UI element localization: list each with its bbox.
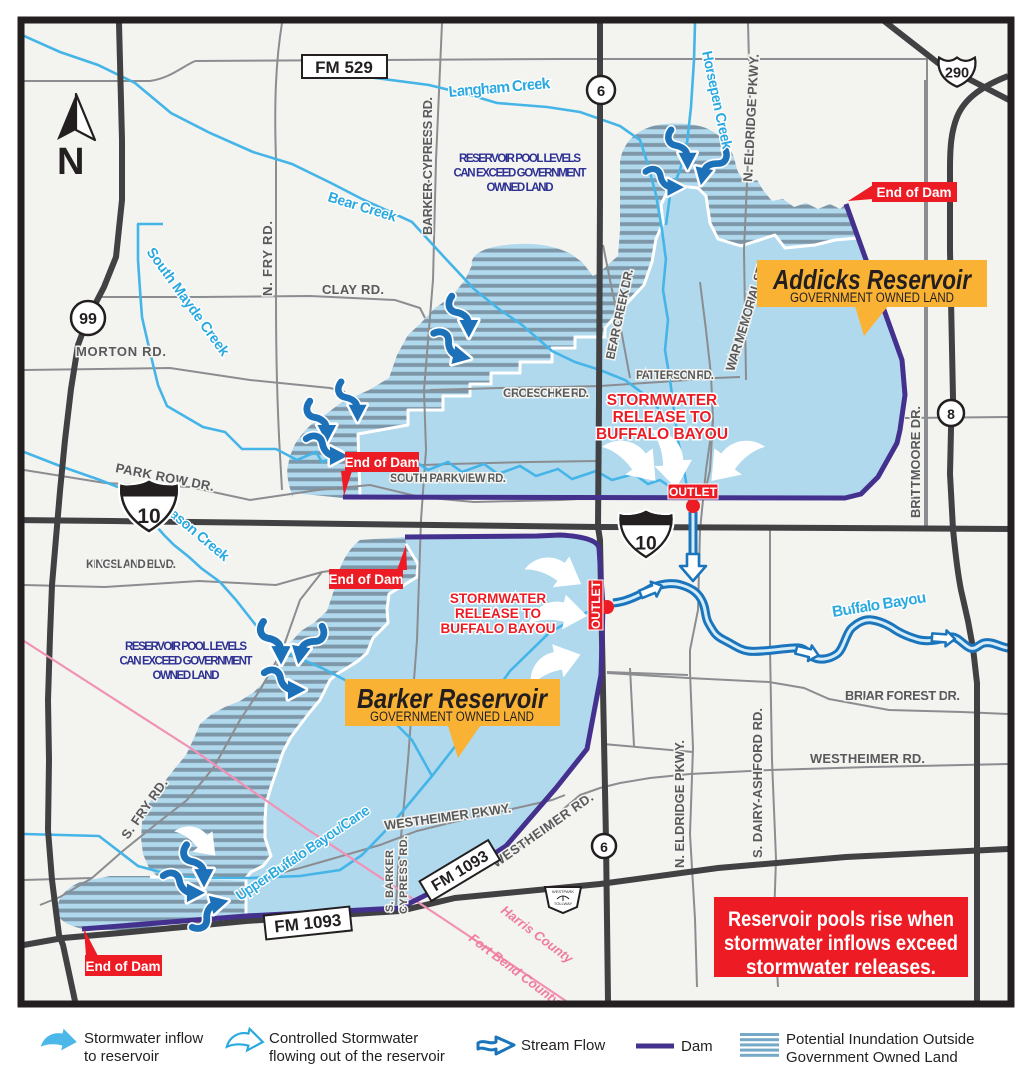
svg-text:10: 10 — [137, 505, 160, 528]
svg-text:End of Dam: End of Dam — [328, 572, 403, 587]
svg-text:GOVERNMENT OWNED LAND: GOVERNMENT OWNED LAND — [790, 290, 954, 305]
svg-text:BRITTMOORE DR.: BRITTMOORE DR. — [908, 406, 923, 518]
svg-text:OWNED LAND: OWNED LAND — [153, 670, 220, 682]
svg-text:99: 99 — [79, 311, 97, 328]
svg-text:CYPRESS RD.: CYPRESS RD. — [398, 836, 410, 914]
svg-text:stormwater inflows exceed: stormwater inflows exceed — [724, 932, 958, 955]
svg-text:STORMWATER: STORMWATER — [607, 392, 718, 409]
svg-text:OUTLET: OUTLET — [589, 580, 603, 629]
svg-text:Controlled Stormwater: Controlled Stormwater — [269, 1030, 418, 1047]
svg-text:CAN EXCEED GOVERNMENT: CAN EXCEED GOVERNMENT — [454, 168, 587, 180]
svg-text:10: 10 — [635, 534, 656, 555]
svg-text:FM 529: FM 529 — [315, 58, 373, 77]
svg-text:PATTERSON RD.: PATTERSON RD. — [636, 370, 714, 382]
svg-text:STORMWATER: STORMWATER — [450, 591, 546, 606]
svg-text:flowing out of the reservoir: flowing out of the reservoir — [269, 1048, 445, 1065]
svg-text:Potential Inundation Outside: Potential Inundation Outside — [786, 1031, 974, 1048]
svg-text:Government Owned Land: Government Owned Land — [786, 1049, 958, 1066]
svg-text:GOVERNMENT OWNED LAND: GOVERNMENT OWNED LAND — [370, 709, 534, 724]
svg-text:RELEASE TO: RELEASE TO — [455, 606, 541, 621]
svg-text:OWNED LAND: OWNED LAND — [487, 182, 554, 194]
svg-text:stormwater releases.: stormwater releases. — [746, 956, 936, 979]
svg-text:S. DAIRY-ASHFORD RD.: S. DAIRY-ASHFORD RD. — [750, 708, 765, 858]
svg-text:RESERVOIR POOL LEVELS: RESERVOIR POOL LEVELS — [459, 153, 581, 165]
svg-text:WESTHEIMER RD.: WESTHEIMER RD. — [810, 751, 925, 766]
svg-text:Dam: Dam — [681, 1038, 713, 1055]
svg-text:MORTON RD.: MORTON RD. — [76, 344, 166, 359]
svg-text:8: 8 — [947, 406, 955, 422]
svg-text:WESTPARK: WESTPARK — [552, 889, 574, 894]
svg-text:6: 6 — [600, 839, 608, 855]
svg-text:BUFFALO BAYOU: BUFFALO BAYOU — [596, 426, 728, 443]
svg-text:KINGSLAND BLVD.: KINGSLAND BLVD. — [86, 559, 176, 571]
svg-text:RESERVOIR POOL LEVELS: RESERVOIR POOL LEVELS — [125, 641, 247, 653]
svg-text:to reservoir: to reservoir — [84, 1048, 159, 1065]
svg-text:Reservoir pools rise when: Reservoir pools rise when — [728, 908, 954, 931]
svg-text:N: N — [57, 141, 84, 183]
svg-text:BUFFALO BAYOU: BUFFALO BAYOU — [440, 621, 555, 636]
svg-text:CAN EXCEED GOVERNMENT: CAN EXCEED GOVERNMENT — [120, 656, 253, 668]
svg-text:SOUTH PARKVIEW RD.: SOUTH PARKVIEW RD. — [390, 473, 506, 485]
svg-text:N. ELDRIDGE PKWY.: N. ELDRIDGE PKWY. — [672, 740, 687, 868]
svg-text:S. BARKER: S. BARKER — [384, 850, 396, 912]
svg-text:End of Dam: End of Dam — [85, 959, 160, 974]
svg-text:BARKER-CYPRESS RD.: BARKER-CYPRESS RD. — [420, 97, 435, 235]
svg-text:BRIAR FOREST DR.: BRIAR FOREST DR. — [845, 688, 960, 703]
svg-text:OUTLET: OUTLET — [669, 485, 718, 499]
svg-text:RELEASE TO: RELEASE TO — [613, 409, 712, 426]
svg-text:End of Dam: End of Dam — [344, 455, 419, 470]
svg-text:End of Dam: End of Dam — [876, 185, 951, 200]
svg-text:GROESCHKE RD.: GROESCHKE RD. — [503, 386, 589, 400]
svg-text:6: 6 — [597, 83, 605, 100]
svg-text:TOLLWAY: TOLLWAY — [554, 901, 573, 906]
svg-text:CLAY RD.: CLAY RD. — [322, 282, 384, 297]
svg-text:Stream Flow: Stream Flow — [521, 1037, 605, 1054]
svg-text:N. FRY RD.: N. FRY RD. — [260, 221, 275, 296]
svg-text:290: 290 — [945, 66, 969, 82]
svg-text:Stormwater inflow: Stormwater inflow — [84, 1030, 203, 1047]
